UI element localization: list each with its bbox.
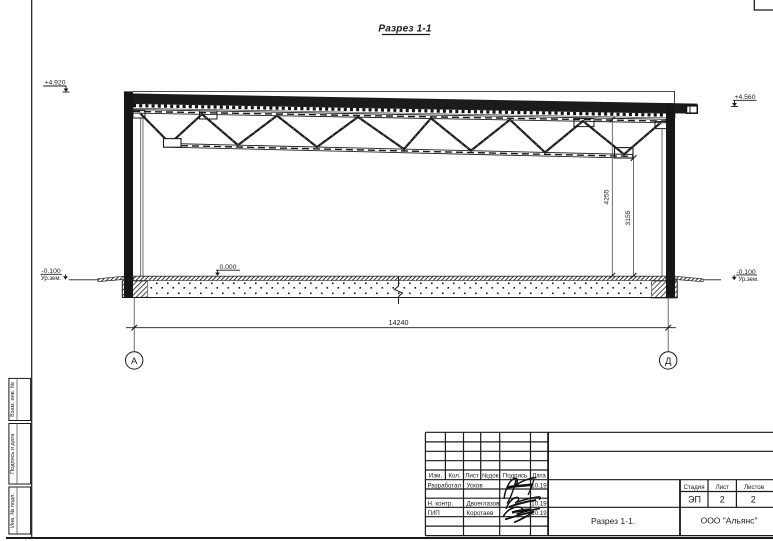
svg-text:Лист: Лист [465, 473, 479, 480]
svg-text:Ур.зем.: Ур.зем. [738, 277, 759, 283]
svg-text:Ур.зем.: Ур.зем. [41, 276, 62, 282]
svg-text:14240: 14240 [389, 318, 409, 327]
svg-text:Коротаев: Коротаев [467, 510, 494, 517]
svg-text:Усков: Усков [467, 482, 484, 489]
svg-text:3155: 3155 [625, 210, 632, 225]
svg-text:Стадия: Стадия [683, 484, 704, 491]
svg-text:Разрез 1-1: Разрез 1-1 [378, 24, 432, 35]
svg-text:+4.560: +4.560 [735, 94, 756, 101]
svg-text:ГИП: ГИП [428, 510, 440, 517]
svg-text:Подпись и дата: Подпись и дата [10, 433, 16, 474]
svg-text:10.19: 10.19 [531, 501, 547, 508]
svg-text:А: А [131, 356, 138, 367]
svg-text:2: 2 [720, 495, 725, 505]
svg-text:Н. контр.: Н. контр. [428, 501, 454, 508]
svg-text:Двоеглазов: Двоеглазов [467, 501, 501, 508]
svg-text:Листов: Листов [744, 484, 765, 491]
svg-text:Кол.: Кол. [448, 473, 461, 480]
svg-text:Взам. инв. №: Взам. инв. № [10, 382, 16, 417]
svg-text:ЭП: ЭП [688, 495, 701, 505]
svg-text:Разрез 1-1.: Разрез 1-1. [591, 516, 635, 526]
svg-text:Д: Д [665, 356, 672, 367]
svg-text:ООО "Альянс": ООО "Альянс" [701, 516, 758, 526]
svg-text:Изм.: Изм. [429, 473, 443, 480]
svg-text:+4.920: +4.920 [45, 80, 66, 87]
svg-text:№док: №док [482, 473, 499, 480]
svg-text:Инв. № подл.: Инв. № подл. [10, 493, 16, 528]
svg-text:Лист: Лист [716, 484, 730, 491]
svg-text:4255: 4255 [604, 189, 611, 204]
svg-text:2: 2 [751, 495, 756, 505]
svg-text:Дата: Дата [532, 473, 546, 480]
svg-text:10.19: 10.19 [531, 482, 547, 489]
svg-text:Разработал: Разработал [428, 482, 462, 489]
